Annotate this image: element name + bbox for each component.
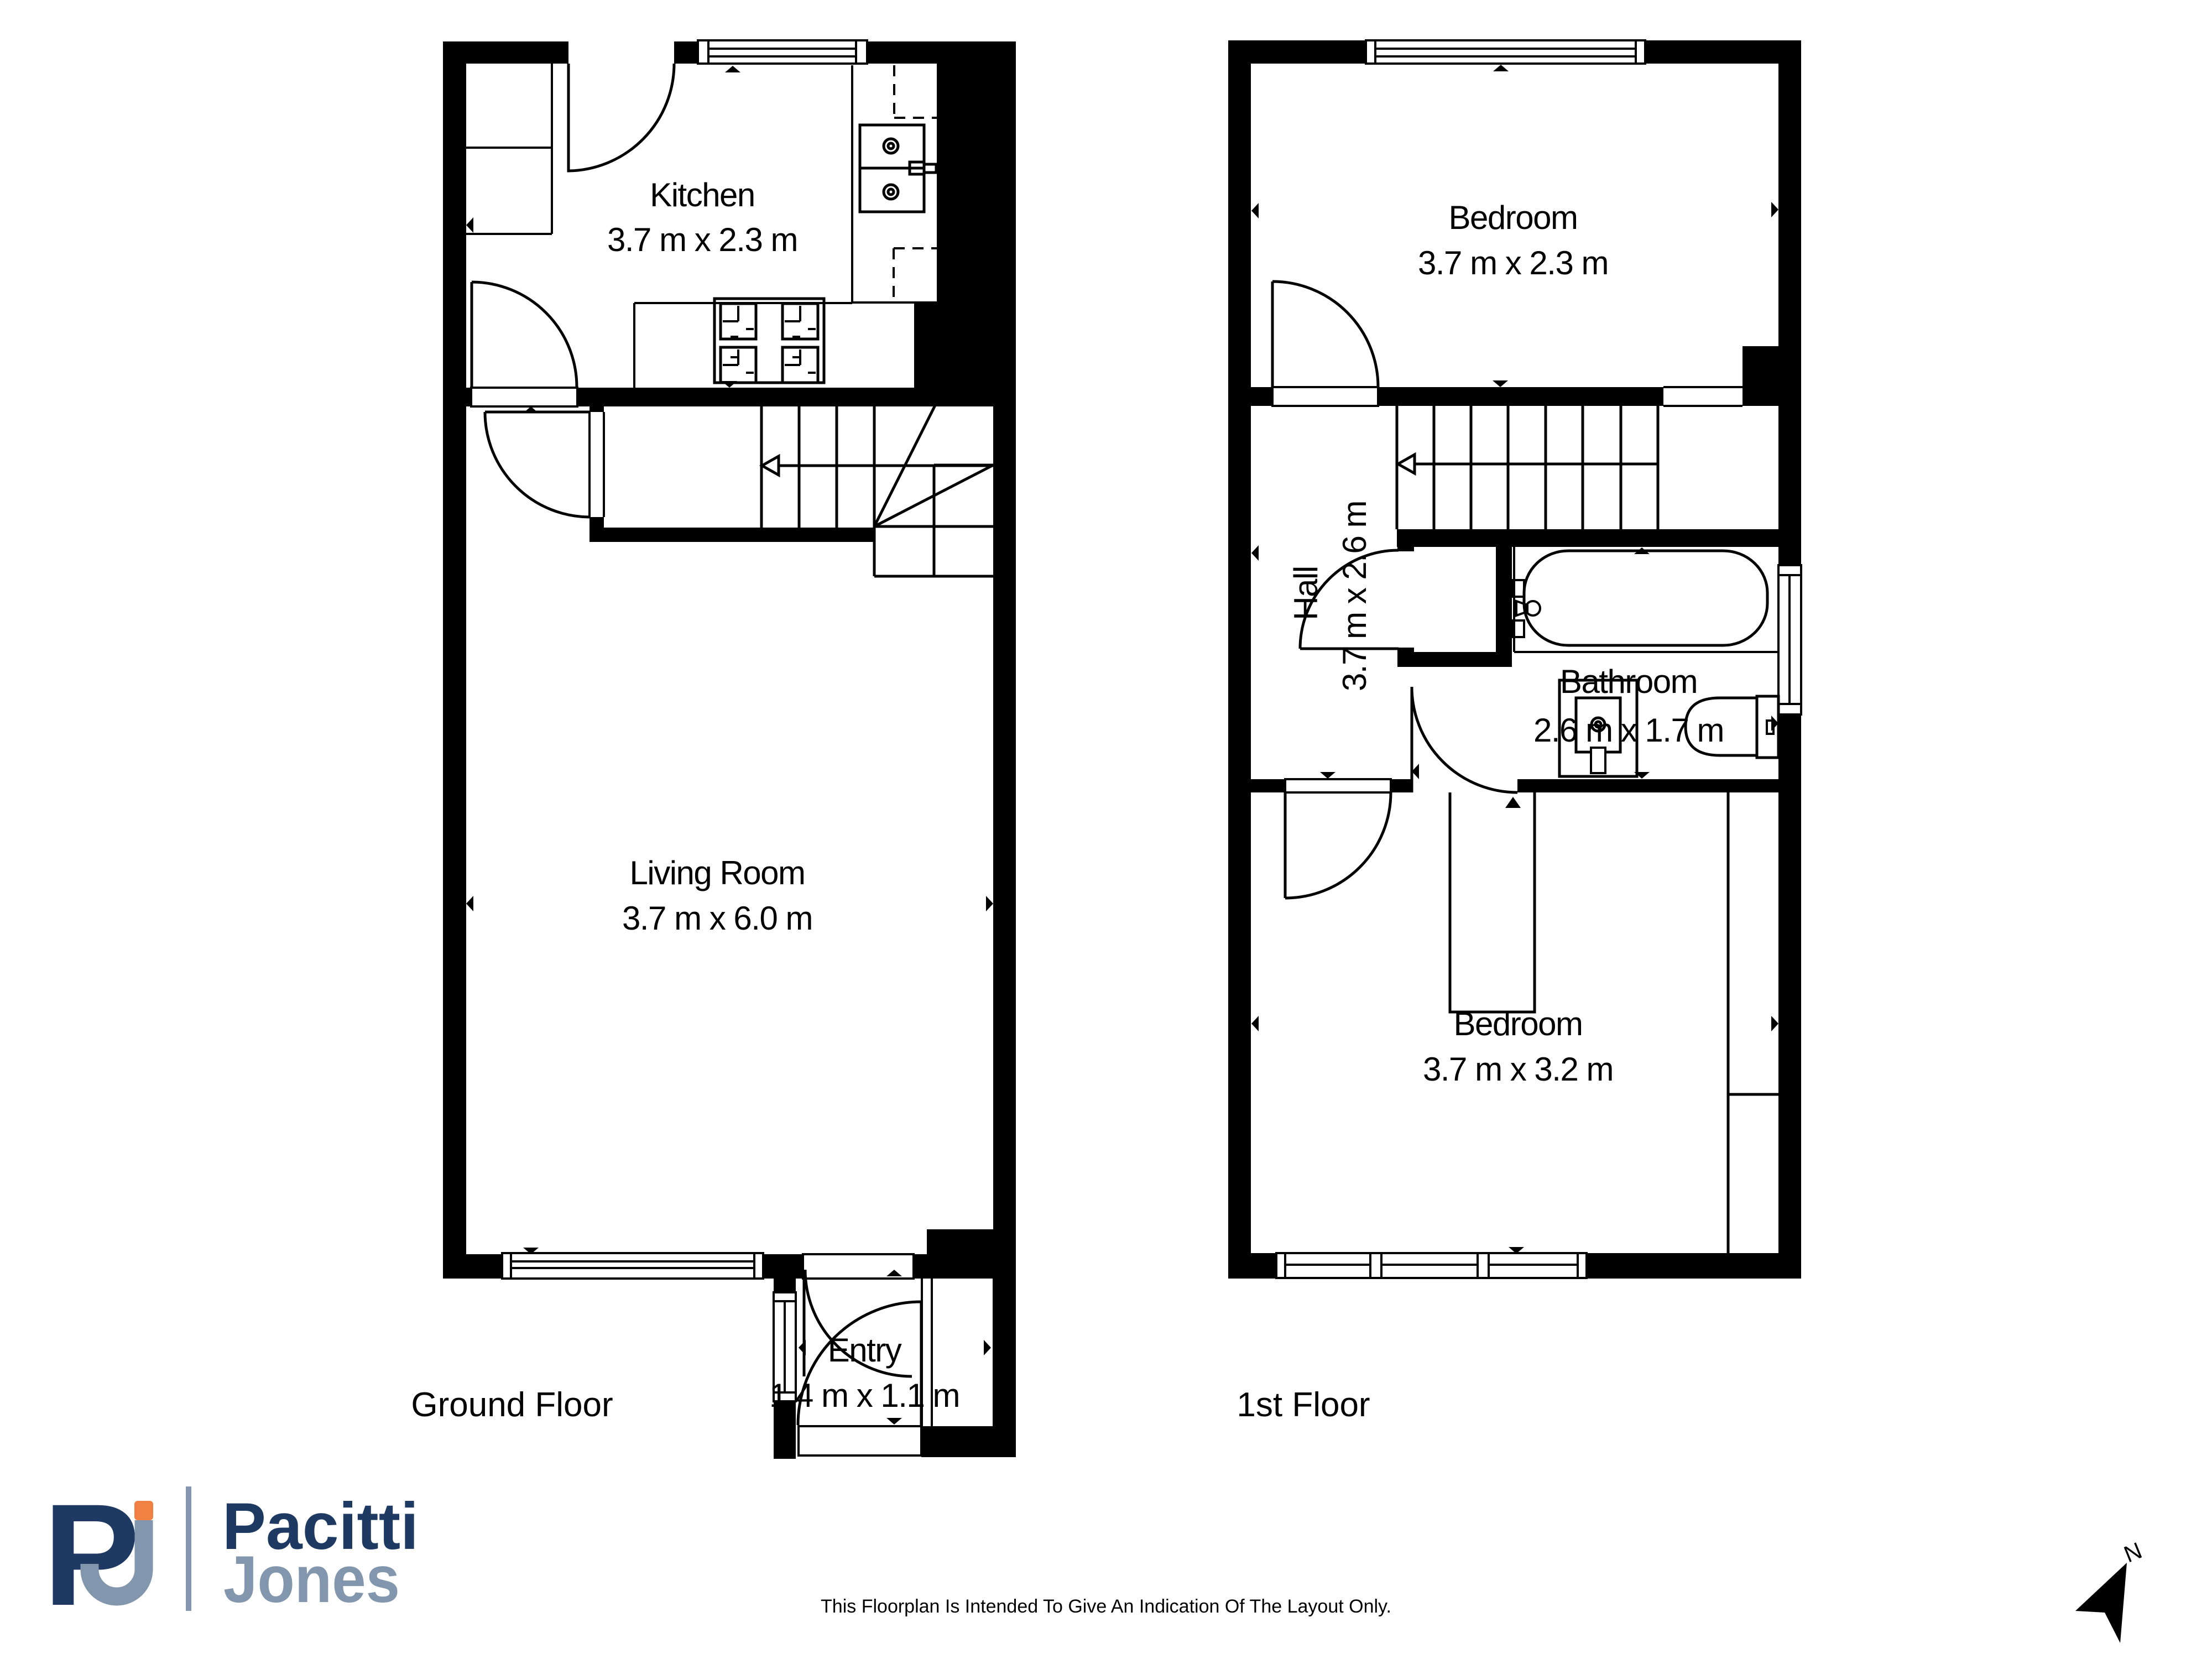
- svg-text:This Floorplan Is Intended To: This Floorplan Is Intended To Give An In…: [821, 1596, 1391, 1617]
- svg-text:Ground Floor: Ground Floor: [411, 1386, 613, 1424]
- svg-text:Kitchen: Kitchen: [650, 176, 755, 213]
- svg-text:Hall: Hall: [1287, 566, 1324, 620]
- svg-text:Living Room: Living Room: [630, 854, 805, 891]
- svg-text:Bedroom: Bedroom: [1449, 199, 1578, 236]
- svg-text:Bedroom: Bedroom: [1454, 1005, 1583, 1042]
- svg-text:2.6 m x 1.7 m: 2.6 m x 1.7 m: [1533, 712, 1724, 749]
- svg-text:P: P: [43, 1474, 140, 1636]
- svg-text:3.7 m x 2.3 m: 3.7 m x 2.3 m: [1418, 244, 1608, 281]
- svg-text:Jones: Jones: [223, 1542, 400, 1616]
- svg-text:3.7 m x 2.6 m: 3.7 m x 2.6 m: [1336, 501, 1373, 691]
- svg-text:Bathroom: Bathroom: [1560, 663, 1697, 700]
- svg-text:3.7 m x 3.2 m: 3.7 m x 3.2 m: [1423, 1051, 1613, 1088]
- svg-text:3.7 m x 6.0 m: 3.7 m x 6.0 m: [622, 900, 812, 937]
- svg-text:Entry: Entry: [828, 1332, 902, 1369]
- svg-text:1st Floor: 1st Floor: [1237, 1386, 1370, 1424]
- svg-text:3.7 m x 2.3 m: 3.7 m x 2.3 m: [607, 221, 797, 258]
- svg-text:1.4 m x 1.1 m: 1.4 m x 1.1 m: [769, 1377, 959, 1414]
